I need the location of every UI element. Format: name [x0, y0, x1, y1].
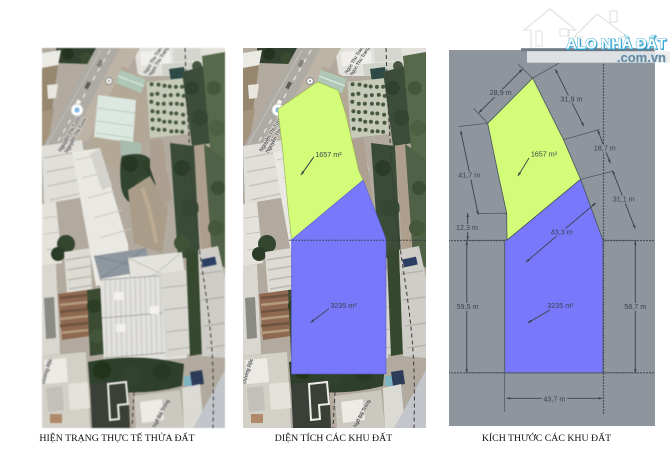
- svg-text:43,7 m: 43,7 m: [543, 394, 565, 403]
- svg-text:18,7 m: 18,7 m: [594, 144, 616, 153]
- svg-text:12,3 m: 12,3 m: [456, 223, 478, 232]
- svg-text:28,9 m: 28,9 m: [490, 88, 512, 97]
- svg-text:1657 m²: 1657 m²: [315, 150, 342, 159]
- svg-text:41,7 m: 41,7 m: [458, 171, 480, 180]
- svg-text:43,3 m: 43,3 m: [551, 228, 573, 237]
- svg-text:31,9 m: 31,9 m: [561, 94, 583, 103]
- svg-text:58,7 m: 58,7 m: [624, 302, 646, 311]
- svg-text:1657 m²: 1657 m²: [531, 150, 558, 159]
- svg-text:31,1 m: 31,1 m: [613, 195, 635, 204]
- svg-text:59,5 m: 59,5 m: [457, 302, 479, 311]
- svg-text:3235 m²: 3235 m²: [547, 301, 574, 310]
- svg-text:.com.vn: .com.vn: [617, 50, 666, 65]
- svg-text:3235 m²: 3235 m²: [330, 301, 357, 310]
